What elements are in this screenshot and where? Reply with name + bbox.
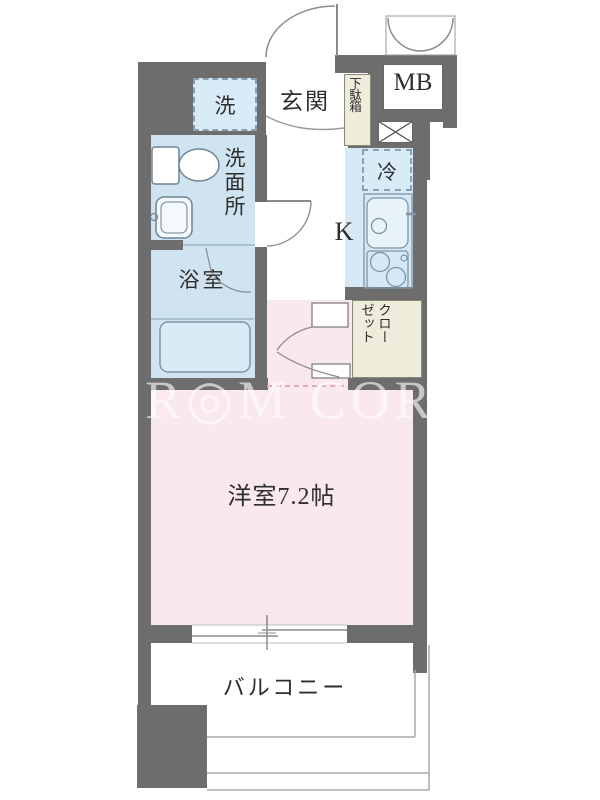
wall-segment: [137, 705, 207, 788]
meter-box-label: MB: [383, 69, 443, 97]
wall-segment: [255, 135, 267, 202]
washer-space: 洗: [193, 78, 257, 131]
balcony-label: バルコニー: [150, 670, 420, 702]
main-room-label: 洋室7.2帖: [150, 476, 413, 511]
wall-segment: [347, 625, 417, 643]
watermark: R◎M CORE: [145, 368, 474, 431]
entrance-door-arc: [266, 6, 335, 57]
window-opening: [192, 625, 347, 643]
refrigerator-space: 冷: [362, 149, 412, 191]
shoe-cabinet-label: 下駄箱: [345, 77, 364, 145]
mb-door-frame: [386, 16, 455, 55]
washroom-label: 洗面所: [219, 147, 249, 277]
entrance-label: 玄関: [265, 82, 345, 116]
kitchen-label: K: [330, 217, 358, 247]
refrigerator-label: 冷: [377, 156, 397, 185]
wall-segment: [138, 240, 183, 250]
closet-label-col1: クロー: [375, 303, 392, 375]
washer-label: 洗: [215, 90, 236, 120]
pipe-shaft-box: [378, 121, 413, 143]
washroom-door-arc: [267, 201, 311, 246]
mb-door-arc-left: [388, 18, 420, 51]
mb-door-arc-right: [420, 18, 453, 51]
closet-label: クロー ゼット: [358, 303, 392, 375]
wall-segment: [345, 287, 427, 300]
floor-plan: 洗 冷: [0, 0, 600, 800]
wall-segment: [138, 625, 192, 643]
entrance-step-line: [266, 116, 344, 130]
bathroom-label: 浴室: [155, 264, 250, 294]
closet-label-col2: ゼット: [358, 303, 375, 375]
